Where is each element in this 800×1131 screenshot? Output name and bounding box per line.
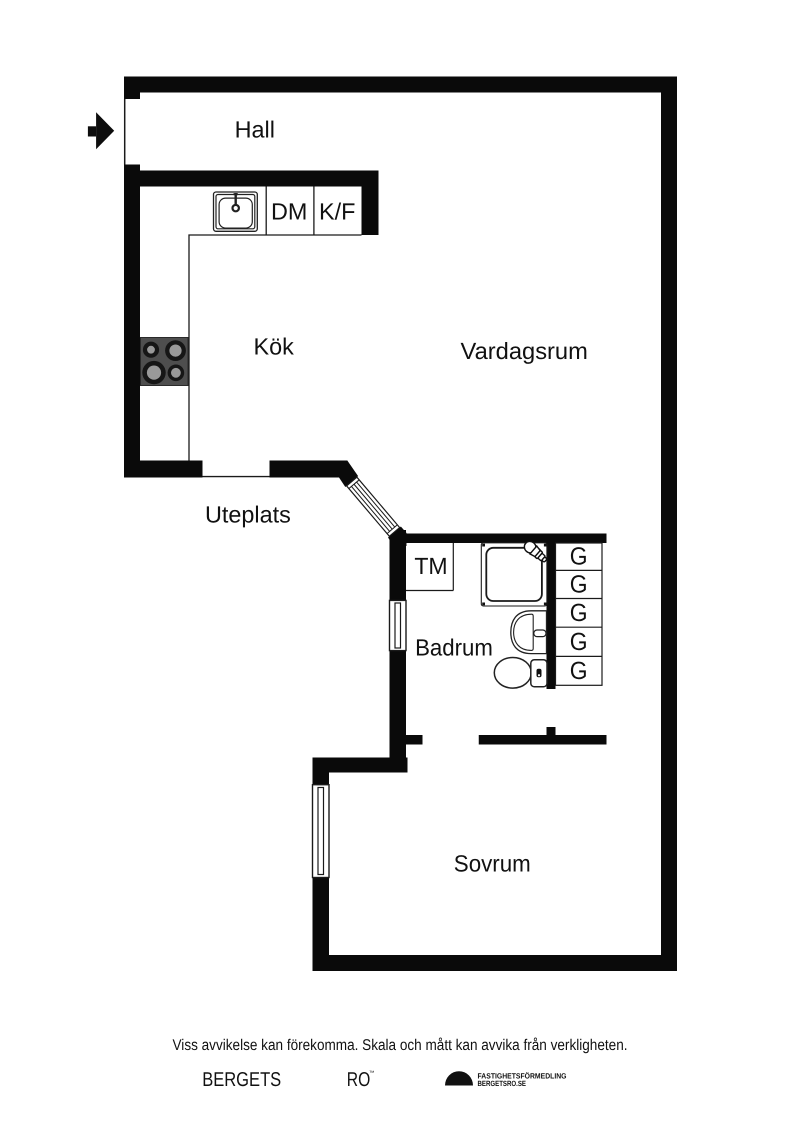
svg-text:Uteplats: Uteplats	[205, 501, 291, 527]
svg-text:DM: DM	[271, 198, 307, 224]
svg-text:G: G	[570, 628, 588, 656]
svg-text:Badrum: Badrum	[415, 635, 493, 661]
svg-text:TM: TM	[414, 553, 447, 579]
svg-text:™: ™	[369, 1071, 375, 1077]
svg-text:Viss avvikelse kan förekomma.: Viss avvikelse kan förekomma. Skala och …	[173, 1037, 628, 1054]
svg-text:Hall: Hall	[235, 117, 275, 143]
svg-text:G: G	[570, 599, 588, 627]
svg-text:BERGETSRO.SE: BERGETSRO.SE	[478, 1079, 527, 1088]
svg-text:RO: RO	[347, 1069, 371, 1091]
svg-text:Vardagsrum: Vardagsrum	[461, 338, 588, 364]
svg-text:K/F: K/F	[319, 199, 355, 225]
svg-text:G: G	[570, 571, 588, 599]
svg-text:G: G	[570, 657, 588, 685]
svg-text:G: G	[570, 543, 588, 571]
svg-text:Kök: Kök	[254, 333, 295, 359]
svg-text:BERGETS: BERGETS	[202, 1069, 281, 1091]
svg-text:Sovrum: Sovrum	[454, 851, 531, 877]
